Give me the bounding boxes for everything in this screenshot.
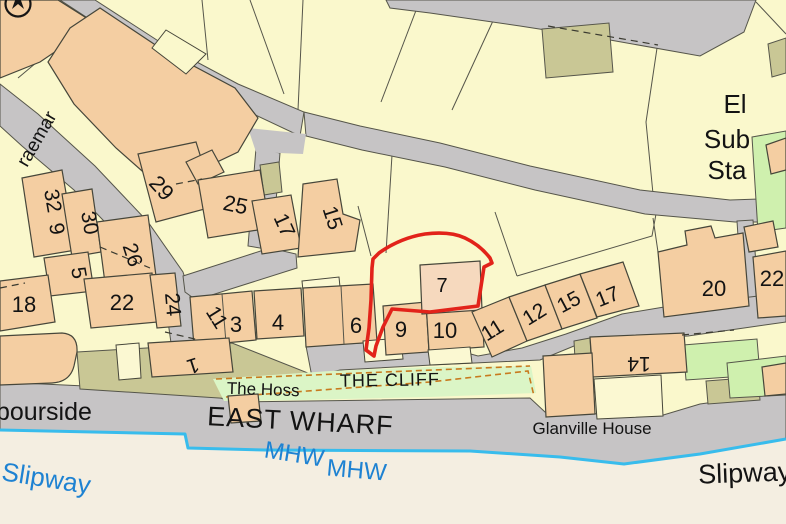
- map-canvas: 32 9 30 26 5 18 22 24 29 25 17 15 11 3 4…: [0, 0, 786, 524]
- label-slipway-east: Slipway: [698, 456, 786, 489]
- outbuilding: [428, 347, 472, 365]
- house-number: 32: [39, 187, 66, 214]
- label-the-cliff: THE CLIFF: [340, 369, 440, 391]
- house-number: 18: [12, 292, 36, 317]
- building-below-road: [543, 353, 595, 417]
- label-harbourside: bourside: [0, 398, 92, 426]
- house-number: 6: [350, 313, 362, 338]
- label-el-sub-sta-line2: Sub: [704, 124, 750, 154]
- building-small-right: [744, 221, 778, 252]
- house-number-highlighted: 7: [436, 275, 447, 297]
- outbuilding: [116, 343, 141, 380]
- building-small-right-lower: [762, 363, 786, 396]
- house-number: 9: [395, 317, 407, 342]
- label-el-sub-sta-line3: Sta: [707, 155, 747, 185]
- house-number: 22: [760, 266, 784, 291]
- house-number: 14: [627, 352, 651, 375]
- label-the-hoss: The Hoss: [227, 379, 300, 401]
- label-el-sub-sta-line1: El: [723, 89, 746, 119]
- house-number: 30: [76, 209, 103, 236]
- house-number: 25: [221, 190, 250, 220]
- house-number: 10: [433, 318, 457, 343]
- building-pale: [594, 375, 663, 419]
- house-number: 3: [230, 312, 242, 337]
- house-number: 4: [272, 310, 284, 335]
- house-number: 22: [110, 290, 134, 315]
- label-glanville-house: Glanville House: [532, 419, 651, 438]
- house-number: 24: [160, 292, 185, 318]
- label-mhw-2: MHW: [326, 454, 388, 486]
- building-harbourside: [0, 333, 77, 385]
- house-number: 20: [702, 276, 726, 301]
